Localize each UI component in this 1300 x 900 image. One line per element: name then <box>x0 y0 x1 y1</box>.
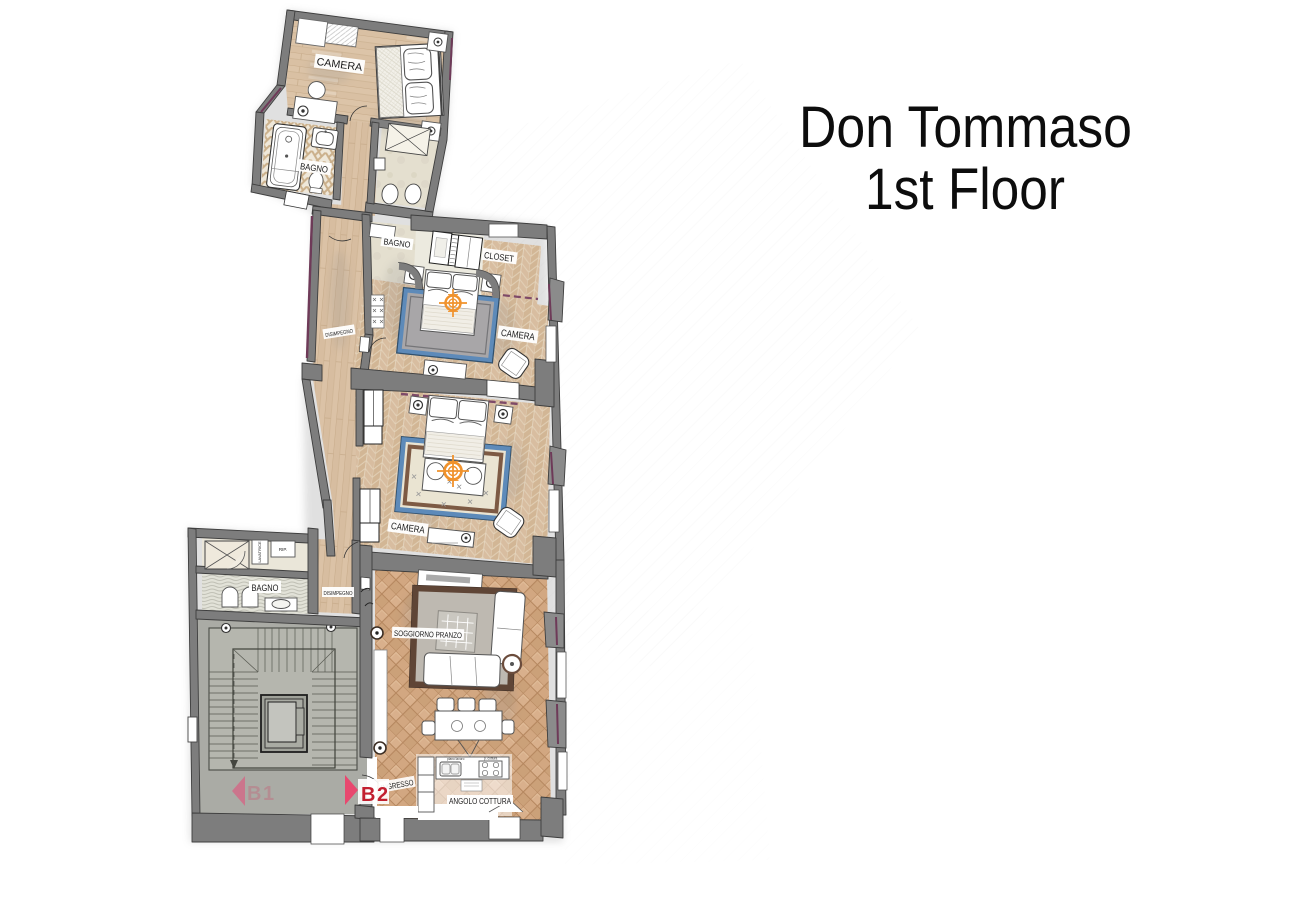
svg-text:DISIMPEGNO: DISIMPEGNO <box>324 591 354 597</box>
svg-text:ANGOLO COTTURA: ANGOLO COTTURA <box>449 797 512 806</box>
svg-text:1st Floor: 1st Floor <box>865 157 1065 222</box>
svg-text:piano lavoro: piano lavoro <box>447 757 465 761</box>
svg-text:B2: B2 <box>361 784 390 806</box>
svg-text:LAVATRICE: LAVATRICE <box>257 541 262 563</box>
svg-text:BAGNO: BAGNO <box>252 583 279 593</box>
svg-text:p. cottura: p. cottura <box>484 757 498 761</box>
svg-text:RIP.: RIP. <box>279 547 287 552</box>
svg-text:B1: B1 <box>247 783 276 805</box>
svg-text:Don Tommaso: Don Tommaso <box>799 95 1132 160</box>
